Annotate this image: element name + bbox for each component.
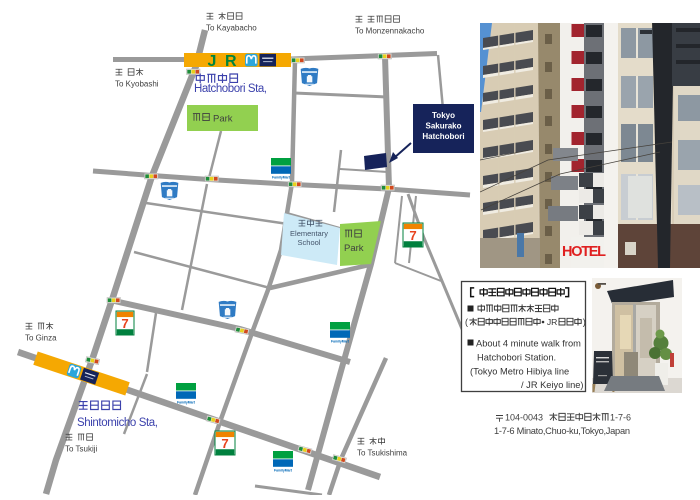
svg-text:): ): [583, 317, 586, 327]
svg-text:Elementary: Elementary: [290, 229, 328, 238]
svg-text:7: 7: [121, 316, 128, 331]
svg-text:1-7-6: 1-7-6: [610, 413, 631, 423]
svg-text:7: 7: [221, 436, 228, 451]
svg-text:FamilyMart: FamilyMart: [274, 469, 293, 473]
svg-text:HOTEL: HOTEL: [562, 244, 606, 260]
svg-text:JR: JR: [547, 317, 558, 327]
svg-text:1-7-6 Minato,Chuo-ku,Tokyo,Jap: 1-7-6 Minato,Chuo-ku,Tokyo,Japan: [494, 426, 630, 436]
svg-text:Tokyo: Tokyo: [432, 111, 455, 120]
svg-text:FamilyMart: FamilyMart: [272, 176, 291, 180]
svg-text:104-0043: 104-0043: [505, 413, 543, 423]
svg-text:Shintomicho Sta,: Shintomicho Sta,: [77, 417, 158, 429]
svg-text:Hatchobori Sta,: Hatchobori Sta,: [194, 83, 267, 95]
svg-text:To Tsukiji: To Tsukiji: [65, 445, 98, 454]
svg-text:To Kayabacho: To Kayabacho: [206, 24, 257, 33]
svg-text:FamilyMart: FamilyMart: [177, 401, 196, 405]
svg-text:FamilyMart: FamilyMart: [331, 340, 350, 344]
svg-text:School: School: [298, 238, 321, 247]
svg-text:To Tsukishima: To Tsukishima: [357, 449, 408, 458]
svg-text:To Ginza: To Ginza: [25, 334, 57, 343]
svg-text:Park: Park: [344, 243, 364, 254]
svg-text:To Kyobashi: To Kyobashi: [115, 80, 159, 89]
svg-text:7: 7: [409, 228, 416, 243]
svg-text:Park: Park: [213, 114, 233, 125]
svg-text:Hatchobori Station.: Hatchobori Station.: [477, 353, 556, 363]
svg-text:To Monzennakacho: To Monzennakacho: [355, 27, 425, 36]
svg-text:Hatchobori: Hatchobori: [422, 132, 464, 141]
svg-text:Sakurako: Sakurako: [425, 122, 461, 131]
svg-text:/ JR Keiyo line): / JR Keiyo line): [521, 380, 584, 390]
svg-text:(Tokyo Metro Hibiya line: (Tokyo Metro Hibiya line: [470, 367, 569, 377]
svg-text:(: (: [465, 317, 468, 327]
svg-text:About 4 minute walk from: About 4 minute walk from: [476, 339, 581, 349]
